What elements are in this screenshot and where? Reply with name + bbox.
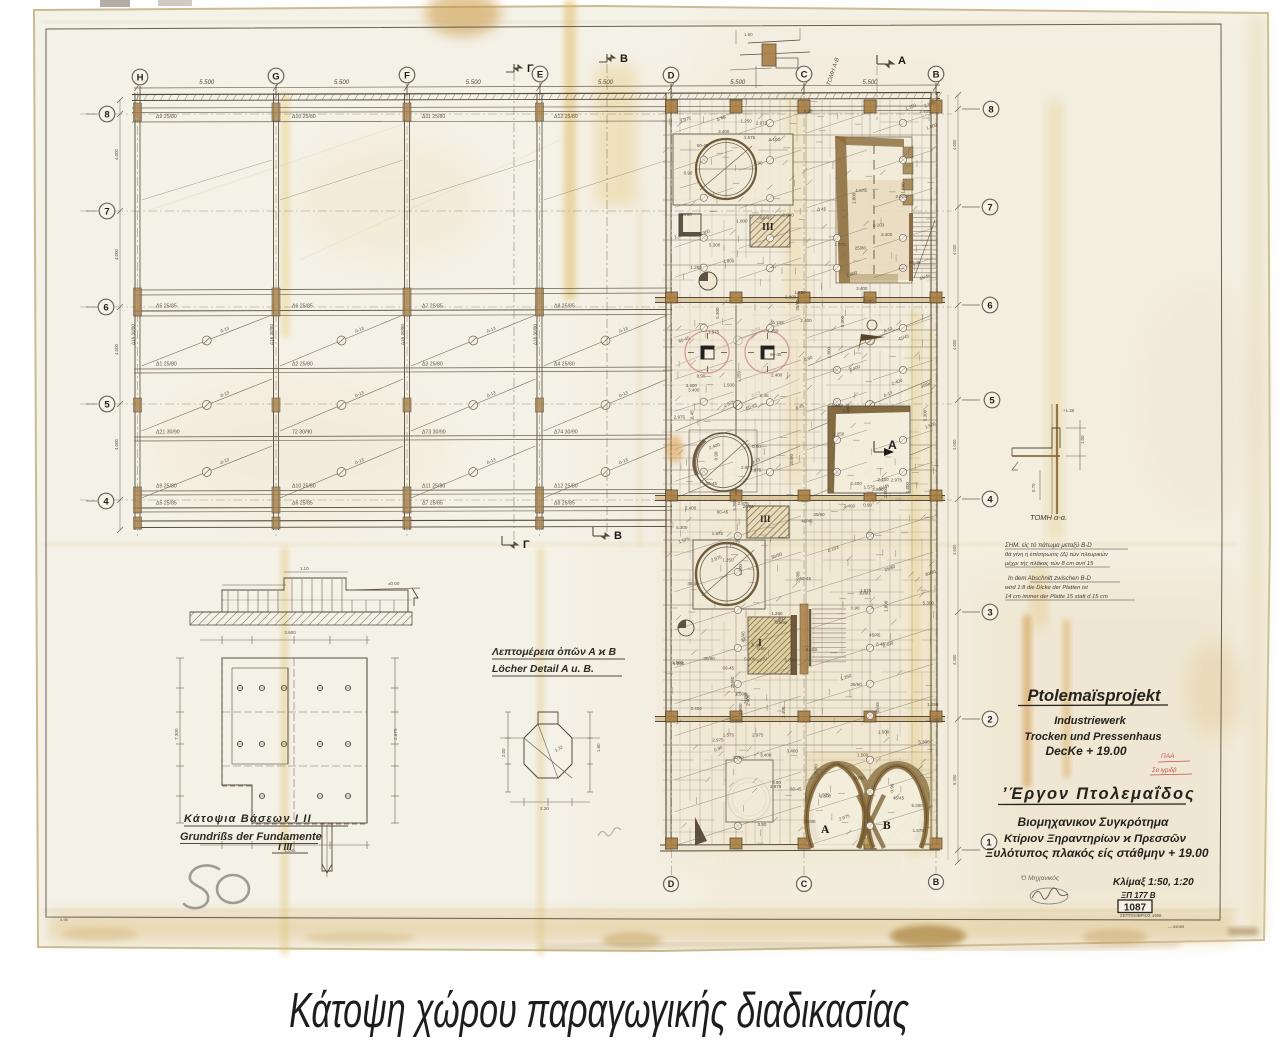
svg-text:1.575: 1.575 xyxy=(913,828,925,833)
svg-text:1.50: 1.50 xyxy=(596,743,601,752)
svg-text:25/80: 25/80 xyxy=(776,620,788,625)
svg-text:5.300: 5.300 xyxy=(715,307,720,319)
svg-text:1.250: 1.250 xyxy=(927,702,939,707)
svg-text:1.250: 1.250 xyxy=(740,119,752,124)
svg-text:30/90: 30/90 xyxy=(681,212,693,217)
svg-text:2.800: 2.800 xyxy=(872,487,884,492)
svg-text:1.10: 1.10 xyxy=(300,566,309,571)
svg-text:Δ10 25/80: Δ10 25/80 xyxy=(292,114,316,120)
svg-text:7: 7 xyxy=(987,202,992,213)
svg-text:5.300: 5.300 xyxy=(732,499,737,511)
svg-text:5.300: 5.300 xyxy=(840,315,845,327)
svg-text:G: G xyxy=(272,71,279,82)
svg-text:4.500: 4.500 xyxy=(952,544,957,555)
svg-text:Löcher Detail A u. B.: Löcher Detail A u. B. xyxy=(492,663,594,675)
svg-text:1.250: 1.250 xyxy=(767,328,779,333)
svg-text:2.975: 2.975 xyxy=(891,478,903,483)
svg-text:60-45: 60-45 xyxy=(770,352,782,357)
svg-text:1.575: 1.575 xyxy=(860,588,872,593)
svg-text:Δ 45: Δ 45 xyxy=(689,410,694,420)
svg-text:25/80: 25/80 xyxy=(804,819,816,824)
svg-text:III: III xyxy=(760,514,771,524)
svg-text:1.575: 1.575 xyxy=(744,135,756,140)
svg-text:4.000: 4.000 xyxy=(952,439,957,450)
svg-text:Δ 45: Δ 45 xyxy=(876,642,886,647)
svg-text:ʼΈργον Πτολεμαΐδος: ʼΈργον Πτολεμαΐδος xyxy=(1002,785,1196,803)
svg-text:3: 3 xyxy=(987,607,992,618)
svg-text:45/45: 45/45 xyxy=(875,702,880,714)
svg-text:Δ4 25/80: Δ4 25/80 xyxy=(554,362,575,368)
svg-text:0.90: 0.90 xyxy=(684,171,693,176)
svg-text:1.575: 1.575 xyxy=(834,242,846,247)
svg-text:60-45: 60-45 xyxy=(722,666,734,671)
svg-text:1.575: 1.575 xyxy=(708,330,720,335)
svg-text:0.90: 0.90 xyxy=(804,109,813,114)
svg-text:30/90: 30/90 xyxy=(854,775,866,780)
svg-text:Δ8 25/85: Δ8 25/85 xyxy=(554,304,575,310)
svg-text:2.400: 2.400 xyxy=(800,318,812,323)
svg-text:Δ16 30/80: Δ16 30/80 xyxy=(269,324,274,345)
svg-text:3.400: 3.400 xyxy=(760,752,772,757)
svg-text:Grundrißs der Fundamente: Grundrißs der Fundamente xyxy=(180,831,322,843)
svg-text:5.300: 5.300 xyxy=(912,803,924,808)
svg-text:Γ: Γ xyxy=(523,539,530,551)
svg-text:B: B xyxy=(614,530,622,542)
svg-text:45/45: 45/45 xyxy=(801,518,813,523)
svg-text:Δ16 30/80: Δ16 30/80 xyxy=(131,324,136,345)
svg-text:2.400: 2.400 xyxy=(850,481,862,486)
svg-text:5: 5 xyxy=(989,395,995,406)
svg-text:Δ7 25/85: Δ7 25/85 xyxy=(422,501,443,507)
svg-text:5.300: 5.300 xyxy=(744,656,756,661)
svg-text:1.800: 1.800 xyxy=(884,600,889,612)
svg-text:7.300: 7.300 xyxy=(174,728,179,740)
svg-text:30/90: 30/90 xyxy=(733,755,745,760)
svg-text:±0.00: ±0.00 xyxy=(388,581,400,586)
svg-text:30/90: 30/90 xyxy=(850,682,862,687)
svg-text:1.800: 1.800 xyxy=(883,486,888,498)
svg-text:Δ12 25/80: Δ12 25/80 xyxy=(554,114,578,120)
svg-text:30/90: 30/90 xyxy=(813,512,825,517)
svg-text:2.400: 2.400 xyxy=(919,109,931,114)
svg-text:ΞΠ 177 Β: ΞΠ 177 Β xyxy=(1120,891,1156,900)
svg-text:3.400: 3.400 xyxy=(881,232,893,237)
svg-text:Δ6 25/85: Δ6 25/85 xyxy=(292,501,313,507)
svg-text:30/90: 30/90 xyxy=(703,656,715,661)
svg-text:1.800: 1.800 xyxy=(826,347,831,359)
svg-text:Δ21 30/90: Δ21 30/90 xyxy=(156,430,180,436)
svg-text:30/90: 30/90 xyxy=(731,719,743,724)
svg-text:1087: 1087 xyxy=(1124,903,1147,914)
svg-text:0.90: 0.90 xyxy=(713,451,718,460)
svg-text:2.400: 2.400 xyxy=(781,706,786,718)
svg-text:Ὁ Μηχανικός: Ὁ Μηχανικός xyxy=(1021,874,1060,882)
svg-text:2.20: 2.20 xyxy=(540,806,549,811)
svg-text:Βιομηχανικον Συγκρότημα: Βιομηχανικον Συγκρότημα xyxy=(1018,815,1169,829)
svg-text:5.300: 5.300 xyxy=(952,774,957,785)
svg-text:25/80: 25/80 xyxy=(862,299,874,304)
svg-text:1.250: 1.250 xyxy=(737,370,742,382)
svg-text:C: C xyxy=(801,879,808,889)
svg-text:B: B xyxy=(883,820,891,832)
svg-text:0.90: 0.90 xyxy=(890,783,895,792)
svg-text:Δ74 30/90: Δ74 30/90 xyxy=(554,430,578,436)
svg-text:1.575: 1.575 xyxy=(855,188,867,193)
svg-text:45/45: 45/45 xyxy=(740,631,745,643)
svg-text:1.500: 1.500 xyxy=(857,752,869,757)
svg-text:1.800: 1.800 xyxy=(905,481,910,493)
svg-text:1.800: 1.800 xyxy=(738,703,743,715)
svg-text:Δ5 25/85: Δ5 25/85 xyxy=(156,501,177,507)
svg-text:2: 2 xyxy=(987,714,992,725)
svg-text:Ξυλότυπος πλακός είς στάθμην +: Ξυλότυπος πλακός είς στάθμην + 19.00 xyxy=(984,846,1208,860)
svg-text:45/45: 45/45 xyxy=(869,633,881,638)
svg-text:1.500: 1.500 xyxy=(723,382,735,387)
svg-text:Κτίριον Ξηραντηρίων ϰ Πρεσσῶν: Κτίριον Ξηραντηρίων ϰ Πρεσσῶν xyxy=(1004,833,1187,845)
svg-text:3.400: 3.400 xyxy=(856,286,868,291)
svg-text:5.300: 5.300 xyxy=(923,409,928,421)
svg-text:Δ73 30/90: Δ73 30/90 xyxy=(422,430,446,436)
svg-text:25/80: 25/80 xyxy=(795,299,800,311)
svg-text:1.250: 1.250 xyxy=(722,558,734,563)
svg-text:Δ7 25/85: Δ7 25/85 xyxy=(422,304,443,310)
svg-text:Δ 45: Δ 45 xyxy=(751,643,761,648)
svg-text:6: 6 xyxy=(103,302,108,313)
svg-text:60-45: 60-45 xyxy=(706,481,718,486)
svg-text:60-45: 60-45 xyxy=(760,215,772,220)
svg-text:+1.38: +1.38 xyxy=(1063,408,1075,413)
svg-text:4.000: 4.000 xyxy=(114,343,119,355)
svg-text:0.90: 0.90 xyxy=(758,822,767,827)
svg-text:B: B xyxy=(933,877,940,887)
svg-text:1.500: 1.500 xyxy=(878,729,890,734)
svg-text:Δ2 25/80: Δ2 25/80 xyxy=(292,362,313,368)
svg-text:3.400: 3.400 xyxy=(787,748,799,753)
svg-text:5.300: 5.300 xyxy=(709,242,721,247)
svg-text:Δ 103: Δ 103 xyxy=(768,137,780,142)
svg-text:Κάτοψια Βάσεων Ι ΙΙ: Κάτοψια Βάσεων Ι ΙΙ xyxy=(184,813,312,825)
svg-text:5.500: 5.500 xyxy=(730,80,746,86)
svg-text:25/80: 25/80 xyxy=(855,245,867,250)
svg-text:60-45: 60-45 xyxy=(800,576,812,581)
svg-text:Δ16 30/80: Δ16 30/80 xyxy=(400,324,405,345)
svg-text:72 30/90: 72 30/90 xyxy=(292,430,312,436)
svg-text:2.675: 2.675 xyxy=(393,728,398,740)
svg-text:5.300: 5.300 xyxy=(923,601,935,606)
svg-text:8: 8 xyxy=(104,109,109,120)
svg-text:14 cm immer der Platte 15 sta: 14 cm immer der Platte 15 statt d.15 cm xyxy=(1005,594,1108,600)
svg-text:1.800: 1.800 xyxy=(723,259,735,264)
svg-text:1.575: 1.575 xyxy=(819,792,831,797)
svg-text:5.300: 5.300 xyxy=(676,525,688,530)
svg-text:8: 8 xyxy=(988,104,993,115)
svg-text:ΤΟΜΗ α-α.: ΤΟΜΗ α-α. xyxy=(1030,513,1067,522)
svg-text:Δ5 25/85: Δ5 25/85 xyxy=(156,304,177,310)
svg-text:In dem Abschnitt zwischen B-D: In dem Abschnitt zwischen B-D xyxy=(1008,576,1091,582)
svg-text:H: H xyxy=(137,72,144,83)
svg-text:1.250: 1.250 xyxy=(771,611,783,616)
svg-text:1.50: 1.50 xyxy=(744,32,753,37)
svg-text:ΠΑΑ: ΠΑΑ xyxy=(1161,753,1174,760)
svg-text:B: B xyxy=(933,69,940,80)
svg-text:4.000: 4.000 xyxy=(952,139,957,150)
svg-text:6: 6 xyxy=(987,300,992,311)
svg-text:Δ9 25/80: Δ9 25/80 xyxy=(156,484,177,490)
svg-text:1.500: 1.500 xyxy=(738,564,743,576)
svg-text:2.975: 2.975 xyxy=(756,120,768,125)
svg-text:Δ11 25/80: Δ11 25/80 xyxy=(422,114,445,120)
svg-text:2.400: 2.400 xyxy=(685,506,697,511)
svg-text:4: 4 xyxy=(987,494,993,505)
svg-text:2.975: 2.975 xyxy=(752,732,764,737)
svg-text:1.500: 1.500 xyxy=(672,660,684,665)
svg-text:Δ9 25/80: Δ9 25/80 xyxy=(156,114,177,120)
svg-text:60-45: 60-45 xyxy=(790,786,802,791)
svg-text:A: A xyxy=(821,824,830,836)
svg-text:Δ 103: Δ 103 xyxy=(772,320,784,325)
svg-text:2.800: 2.800 xyxy=(782,213,794,218)
svg-text:5.500: 5.500 xyxy=(598,80,614,86)
svg-text:Trocken und Pressenhaus: Trocken und Pressenhaus xyxy=(1024,731,1161,743)
svg-text:5.300: 5.300 xyxy=(785,657,797,662)
svg-text:Κλίμαξ 1:50, 1:20: Κλίμαξ 1:50, 1:20 xyxy=(1113,877,1194,888)
svg-text:Κάτοψη χώρου παραγωγικής διαδι: Κάτοψη χώρου παραγωγικής διαδικασίας xyxy=(289,983,909,1038)
svg-text:2.400: 2.400 xyxy=(771,372,783,377)
svg-text:Σα ιγριδβ: Σα ιγριδβ xyxy=(1151,768,1177,774)
svg-text:0.70: 0.70 xyxy=(1031,483,1036,492)
svg-text:1.250: 1.250 xyxy=(833,432,845,437)
svg-text:5: 5 xyxy=(104,399,110,410)
svg-text:5.500: 5.500 xyxy=(334,80,350,86)
svg-text:A: A xyxy=(898,55,906,67)
svg-text:Δ 45: Δ 45 xyxy=(760,393,770,398)
svg-text:0.90: 0.90 xyxy=(697,373,706,378)
svg-text:D: D xyxy=(668,879,675,889)
svg-text:Δ 103: Δ 103 xyxy=(831,403,843,408)
svg-text:Δ8 25/85: Δ8 25/85 xyxy=(554,501,575,507)
svg-text:4.000: 4.000 xyxy=(114,148,119,160)
svg-text:45/45: 45/45 xyxy=(893,795,905,800)
svg-text:2.975: 2.975 xyxy=(712,738,724,743)
svg-text:7: 7 xyxy=(104,206,109,217)
svg-text:1.800: 1.800 xyxy=(736,218,748,223)
svg-text:Δ16 30/80: Δ16 30/80 xyxy=(533,324,538,345)
svg-text:25/80: 25/80 xyxy=(789,454,794,466)
svg-text:1.800: 1.800 xyxy=(851,192,856,204)
svg-text:B: B xyxy=(620,53,628,65)
svg-text:0.90: 0.90 xyxy=(863,502,872,507)
svg-text:Ptolemaïsprojekt: Ptolemaïsprojekt xyxy=(1028,687,1162,705)
svg-text:4.000: 4.000 xyxy=(952,244,957,255)
svg-text:2.975: 2.975 xyxy=(738,501,750,506)
svg-text:1.800: 1.800 xyxy=(929,718,941,723)
svg-text:Δ 103: Δ 103 xyxy=(805,647,817,652)
svg-text:Δ 45: Δ 45 xyxy=(817,207,827,212)
svg-text:4.000: 4.000 xyxy=(114,248,119,260)
svg-text:3.400: 3.400 xyxy=(718,129,730,134)
svg-text:1.250: 1.250 xyxy=(794,290,806,295)
svg-text:4.000: 4.000 xyxy=(952,339,957,350)
svg-text:D: D xyxy=(668,70,675,81)
svg-text:III: III xyxy=(762,222,774,233)
svg-text:2.00: 2.00 xyxy=(501,748,506,757)
svg-text:1.575: 1.575 xyxy=(723,732,735,737)
svg-text:DecKe + 19.00: DecKe + 19.00 xyxy=(1045,744,1126,758)
svg-text:Δ1 25/80: Δ1 25/80 xyxy=(156,362,177,368)
svg-text:5.300: 5.300 xyxy=(918,739,930,744)
svg-text:Ι ΙΙΙ: Ι ΙΙΙ xyxy=(278,842,292,853)
svg-text:0.90: 0.90 xyxy=(754,161,763,166)
svg-text:1.250: 1.250 xyxy=(691,265,703,270)
svg-text:0.90: 0.90 xyxy=(752,444,761,449)
svg-text:5.500: 5.500 xyxy=(199,80,215,86)
svg-text:5.500: 5.500 xyxy=(466,80,482,86)
svg-text:3.400: 3.400 xyxy=(688,388,700,393)
svg-text:0.90: 0.90 xyxy=(772,780,781,785)
svg-text:F: F xyxy=(404,70,410,81)
svg-text:45/45: 45/45 xyxy=(687,581,699,586)
svg-text:θά γίνη ή έπίστρωσις (Δ) τών: θά γίνη ή έπίστρωσις (Δ) τών πλευρικών xyxy=(1005,551,1108,558)
svg-text:— 84089: — 84089 xyxy=(1168,924,1185,929)
svg-text:2.975: 2.975 xyxy=(741,465,753,470)
svg-text:wird 1:8 die Dicke der Platten: wird 1:8 die Dicke der Platten ist xyxy=(1005,585,1088,591)
svg-text:5.500: 5.500 xyxy=(862,80,878,86)
svg-text:3.600: 3.600 xyxy=(284,630,296,635)
svg-text:2.800: 2.800 xyxy=(785,294,797,299)
svg-text:2.975: 2.975 xyxy=(674,415,686,420)
svg-text:E: E xyxy=(537,69,543,80)
svg-text:Λεπτομέρεια ὀπῶν Α ϰ Β: Λεπτομέρεια ὀπῶν Α ϰ Β xyxy=(491,646,616,658)
svg-text:Δ 103: Δ 103 xyxy=(873,222,885,227)
svg-text:4.300: 4.300 xyxy=(952,654,957,665)
svg-text:3.400: 3.400 xyxy=(691,706,703,711)
svg-text:2.975: 2.975 xyxy=(896,194,908,199)
svg-text:25/80: 25/80 xyxy=(743,692,748,704)
svg-text:μέχρι τής πλάκος τών 8 cm αντί: μέχρι τής πλάκος τών 8 cm αντί 15 xyxy=(1004,560,1094,567)
svg-text:1.00: 1.00 xyxy=(1080,435,1085,444)
svg-text:60-45: 60-45 xyxy=(697,143,709,148)
svg-text:Industriewerk: Industriewerk xyxy=(1054,715,1126,727)
svg-text:A: A xyxy=(888,438,897,452)
svg-text:1.500: 1.500 xyxy=(901,182,906,194)
svg-text:ΣΗΜ. είς τό πάτωμα μεταξύ Β-: ΣΗΜ. είς τό πάτωμα μεταξύ Β-D xyxy=(1004,542,1092,549)
svg-text:4.000: 4.000 xyxy=(114,438,119,450)
svg-text:60-45: 60-45 xyxy=(717,510,729,515)
svg-text:4.98: 4.98 xyxy=(60,917,69,922)
svg-text:Δ3 25/80: Δ3 25/80 xyxy=(422,362,443,368)
svg-text:ΣΕΠΤΕΜΒΡΙΟΣ 1958: ΣΕΠΤΕΜΒΡΙΟΣ 1958 xyxy=(1120,913,1162,918)
svg-text:4: 4 xyxy=(103,496,109,507)
svg-text:60-45: 60-45 xyxy=(909,260,921,265)
svg-text:Δ6 25/85: Δ6 25/85 xyxy=(292,304,313,310)
svg-text:0.90: 0.90 xyxy=(851,606,860,611)
svg-text:C: C xyxy=(801,69,808,80)
